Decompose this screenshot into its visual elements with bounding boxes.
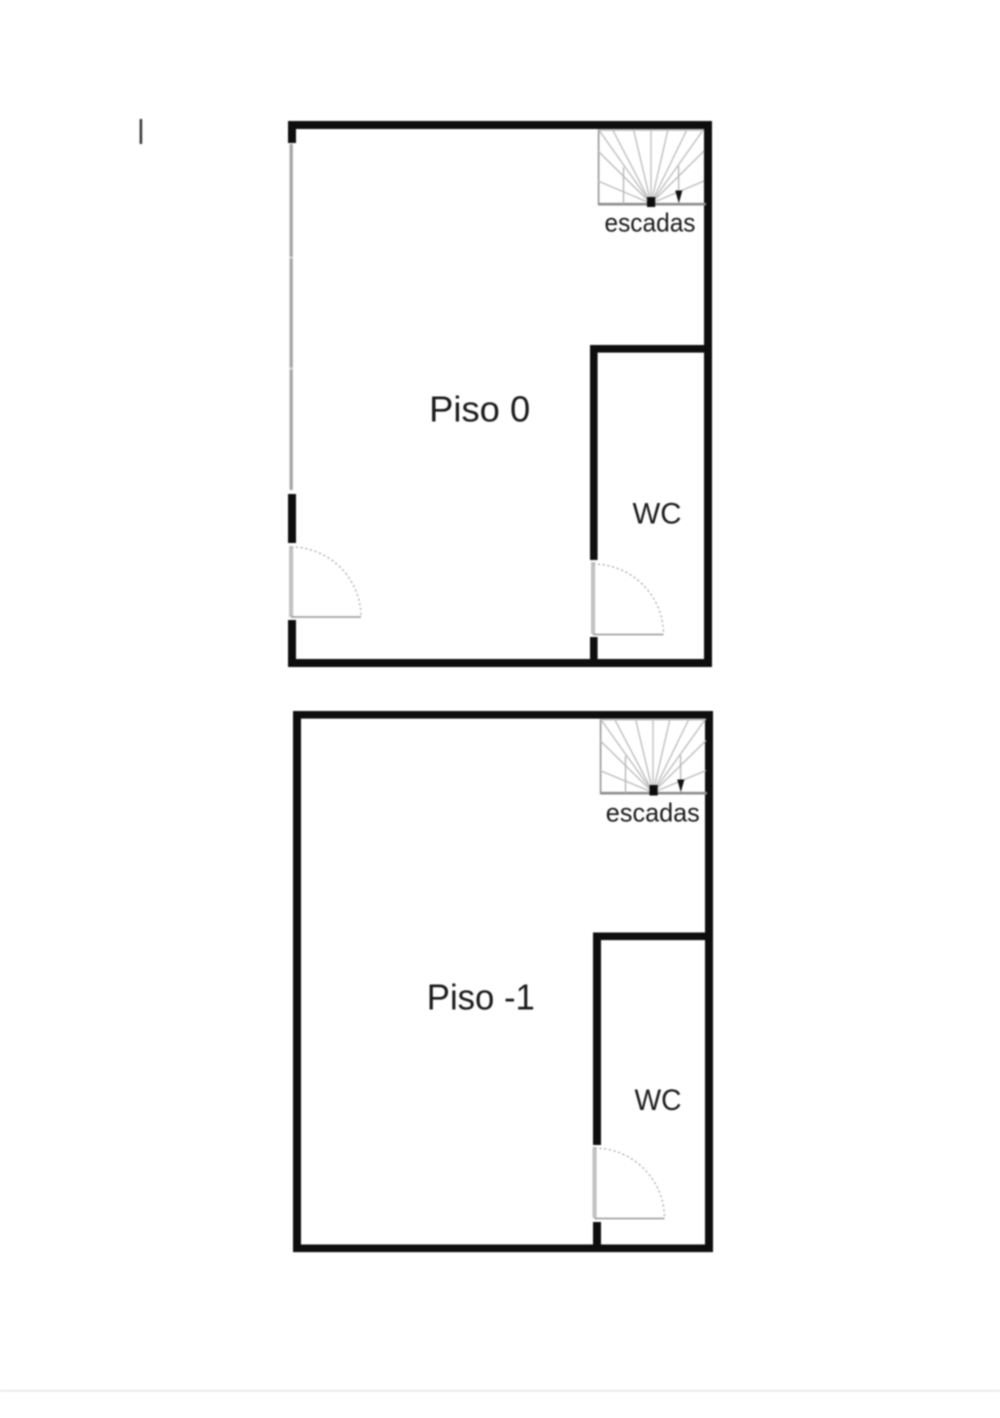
svg-text:Piso 0: Piso 0 (429, 389, 530, 430)
svg-text:escadas: escadas (606, 798, 700, 828)
svg-text:WC: WC (635, 1084, 682, 1117)
svg-text:Piso -1: Piso -1 (427, 977, 535, 1018)
svg-text:WC: WC (633, 498, 682, 531)
svg-text:escadas: escadas (605, 208, 696, 238)
